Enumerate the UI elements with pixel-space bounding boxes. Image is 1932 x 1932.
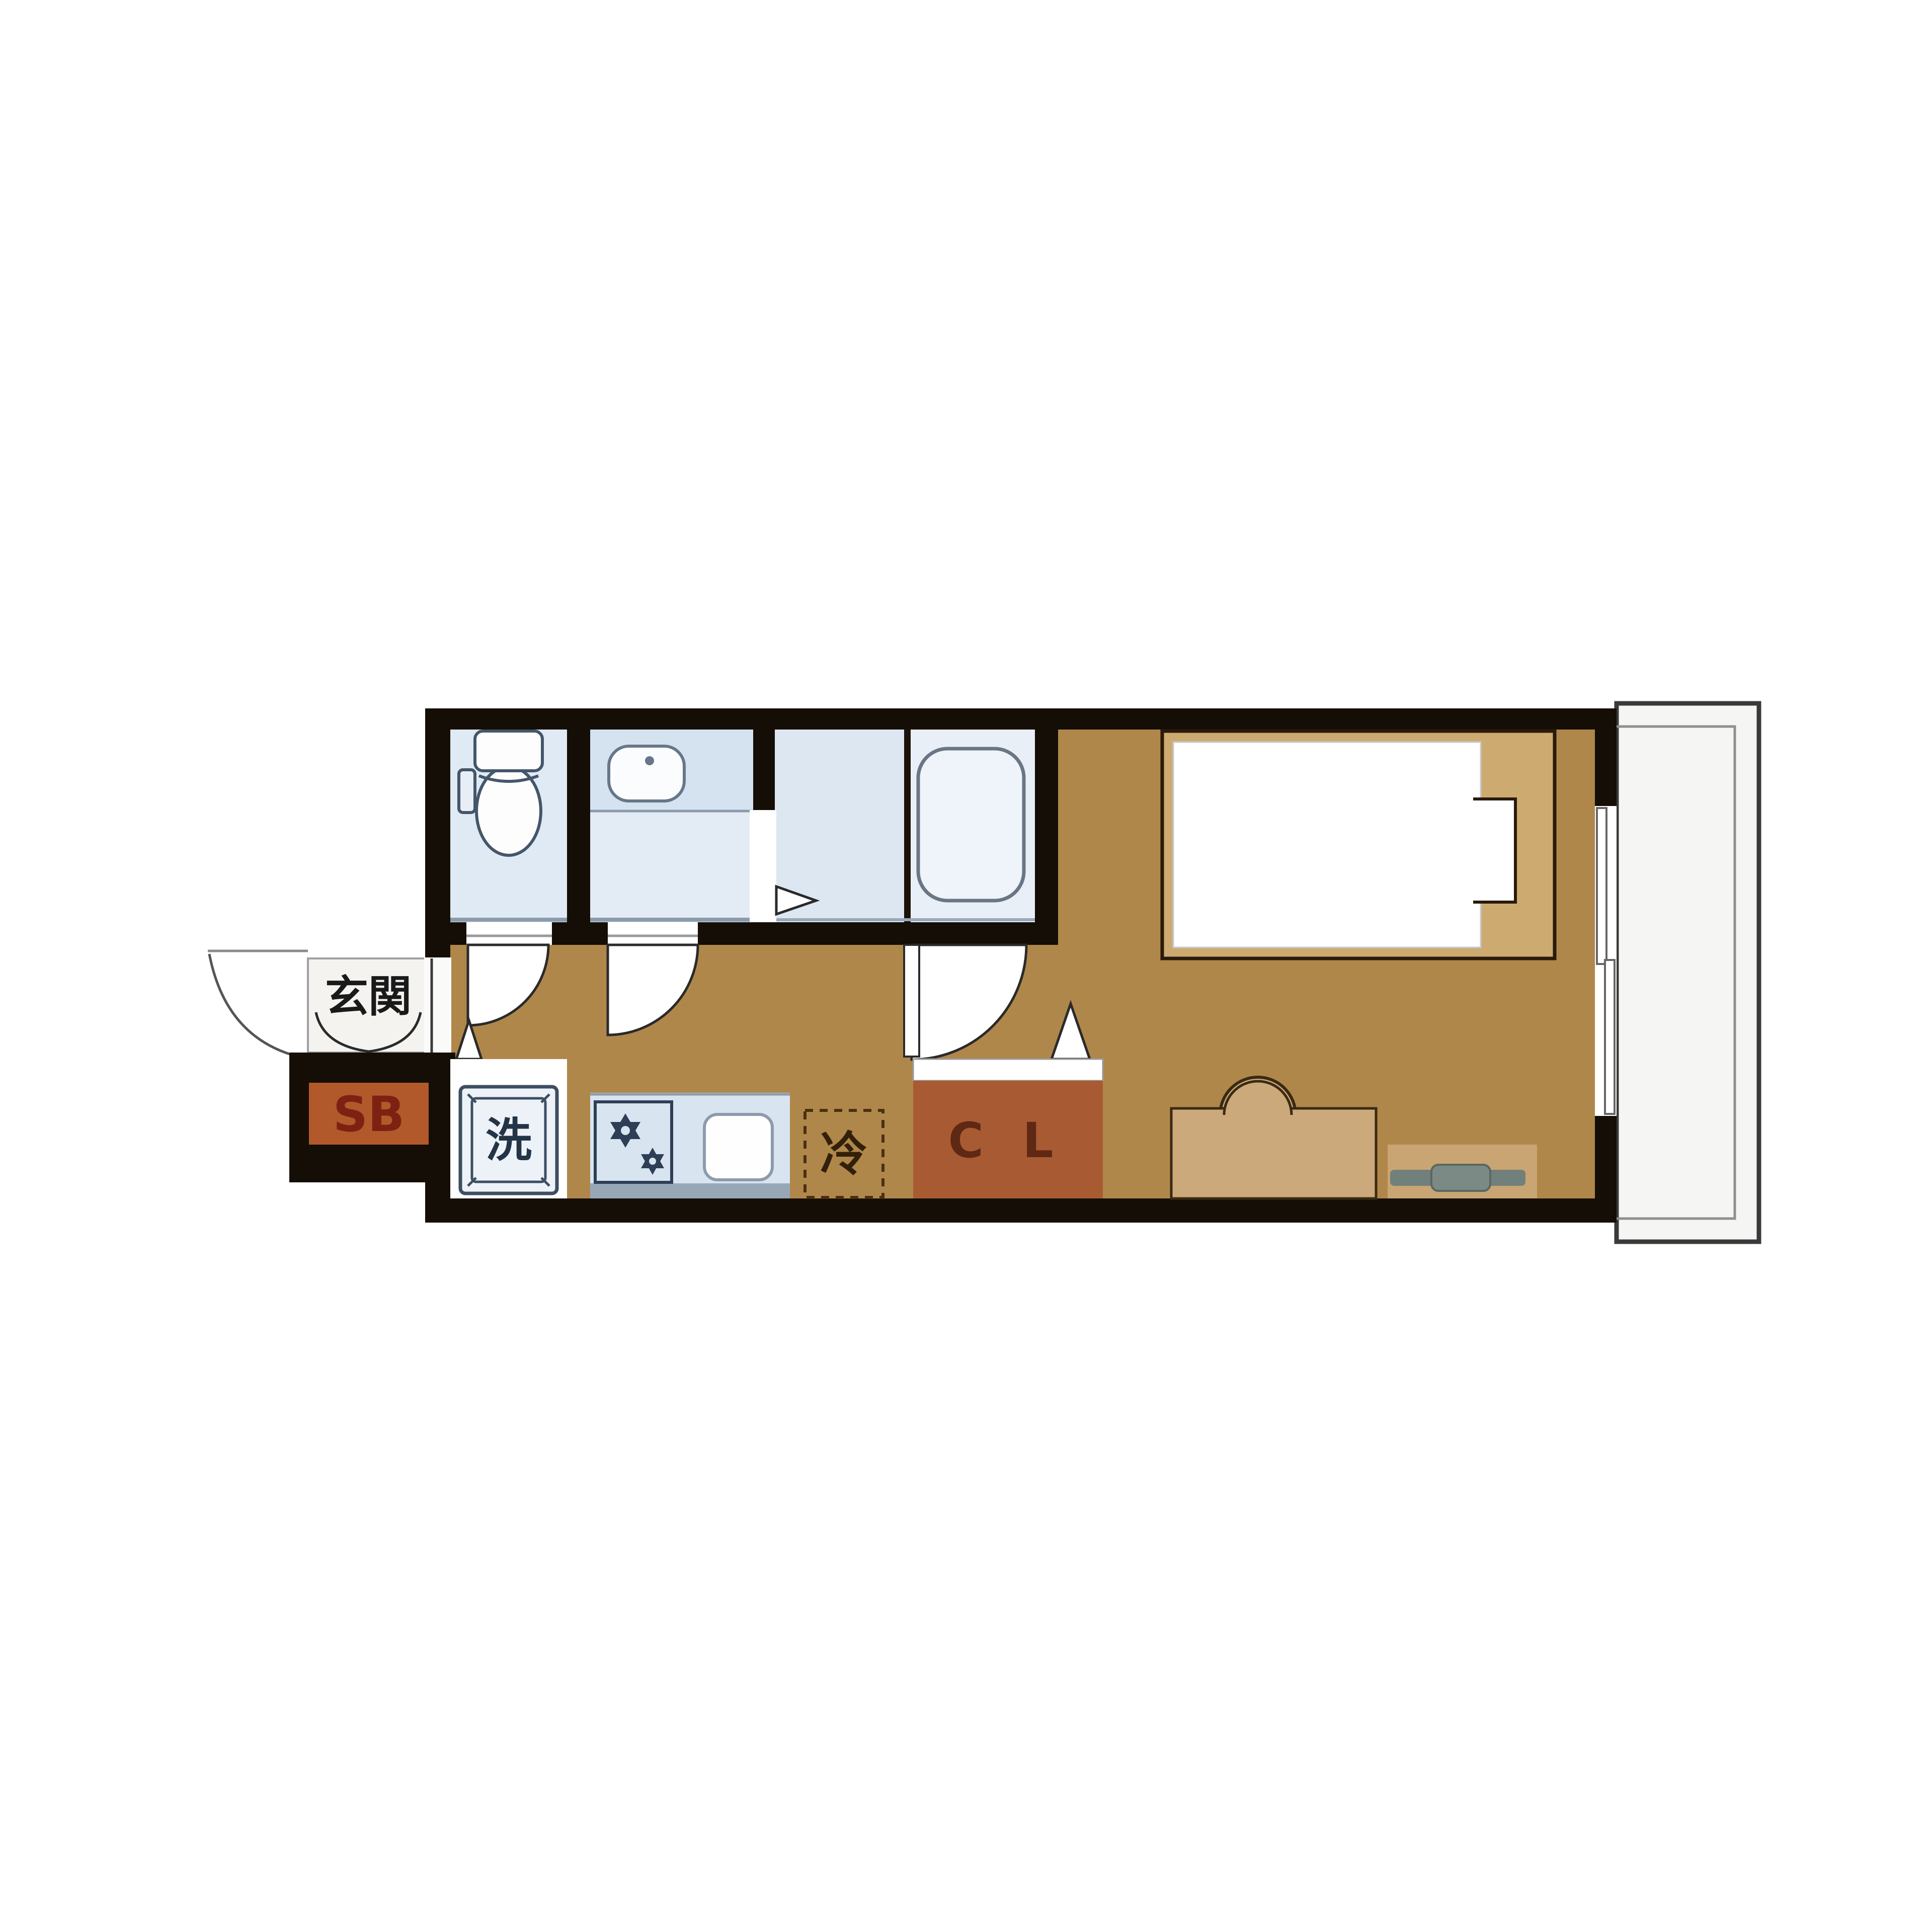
bed-pillow	[1473, 799, 1515, 902]
closet: C L	[913, 1059, 1103, 1198]
entrance-label: 玄関	[325, 972, 412, 1022]
shoe-box-label: SB	[333, 1086, 405, 1143]
washroom-door-gap	[608, 922, 698, 945]
tub-apron-line	[904, 730, 911, 922]
entrance-area: 玄関 SB	[208, 951, 455, 1182]
wall-band-3	[698, 922, 1058, 945]
kitchen	[590, 1093, 790, 1198]
window-panel-upper	[1597, 808, 1606, 964]
closet-door-strip	[913, 1059, 1103, 1081]
wall-sb-bottom	[289, 1145, 455, 1182]
wall-band-2	[552, 922, 608, 945]
bed-mattress	[1173, 742, 1481, 947]
wall-toilet-washroom	[567, 730, 590, 922]
bath-door-gap	[750, 810, 776, 922]
wall-bath-room	[1035, 708, 1058, 945]
wall-bottom	[425, 1198, 1617, 1223]
sliding-window	[1595, 806, 1617, 1116]
entry-door-swing-arc	[209, 954, 298, 1057]
toilet-handle	[459, 770, 475, 813]
counter-front-band	[590, 1183, 790, 1198]
toilet-tank	[475, 731, 542, 771]
floor-plan-page: 玄関 SB	[0, 0, 1932, 1932]
bed	[1162, 731, 1555, 958]
window-panel-lower	[1605, 960, 1615, 1114]
washing-machine-area: 洗	[450, 1059, 567, 1198]
refrigerator-label: 冷	[820, 1127, 867, 1182]
balcony-outline	[1617, 703, 1759, 1242]
balcony	[1617, 703, 1759, 1242]
bathtub-icon	[918, 749, 1024, 901]
washbasin-bowl	[609, 746, 684, 801]
toilet-door-gap	[466, 922, 552, 945]
kitchen-sink-icon	[704, 1114, 772, 1180]
wall-band-1	[450, 922, 466, 945]
desk-icon	[1171, 1108, 1376, 1198]
stove-burner-box	[595, 1102, 672, 1182]
wall-washroom-bath-stub	[753, 730, 775, 810]
wall-top	[425, 708, 1617, 730]
washer-label: 洗	[486, 1113, 532, 1167]
tv-center-icon	[1431, 1165, 1490, 1191]
wall-genkan-sb	[289, 1053, 455, 1083]
genkan-step-gap	[424, 957, 451, 1054]
tv-on-board	[1388, 1145, 1537, 1198]
washbasin-icon	[609, 746, 684, 801]
washbasin-faucet	[645, 756, 654, 765]
floor-plan-drawing: 玄関 SB	[0, 0, 1932, 1932]
closet-label: C L	[948, 1112, 1064, 1169]
room-door-leaf	[904, 945, 919, 1057]
